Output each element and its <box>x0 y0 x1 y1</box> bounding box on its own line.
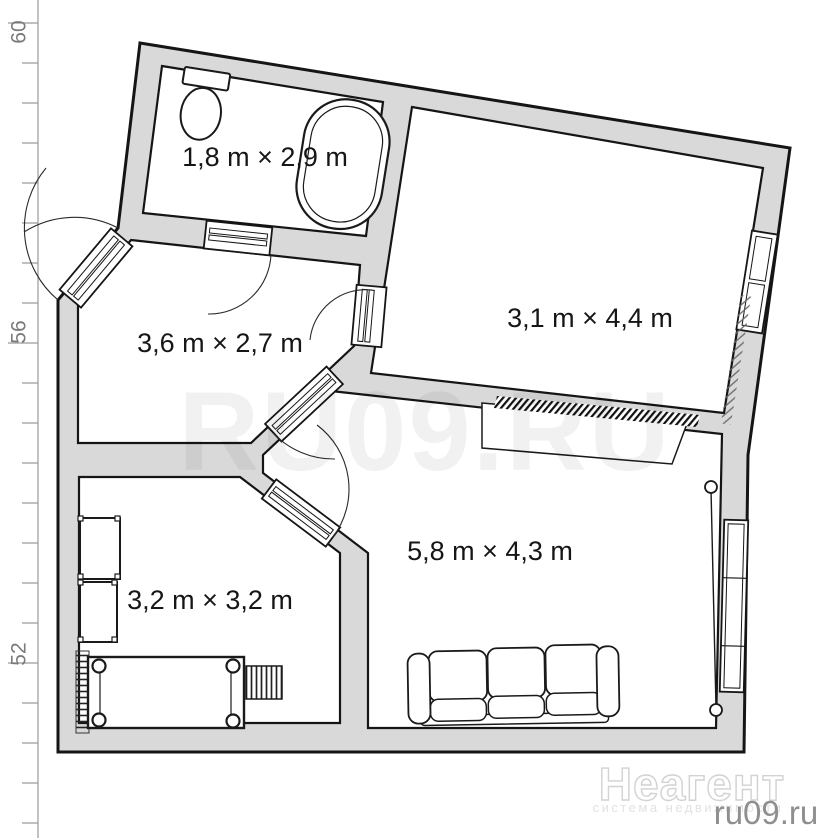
ruler <box>8 0 38 838</box>
ruler-label-52: 52 <box>8 642 31 665</box>
wardrobe-icon <box>78 516 120 579</box>
entry-door-arc <box>24 168 58 300</box>
ruler-label-60: 60 <box>8 20 31 43</box>
window-living-room <box>720 520 748 693</box>
sofa-icon <box>407 644 619 726</box>
label-room-top-right: 3,1 m × 4,4 m <box>507 303 673 333</box>
floor-plan-svg: 60 56 52 <box>0 0 828 838</box>
watermark-center: RU09.RU <box>178 369 671 494</box>
label-bedroom: 3,2 m × 3,2 m <box>127 585 293 615</box>
floor-plan-page: 60 56 52 <box>0 0 828 838</box>
watermark-site: ru09.ru <box>714 794 819 831</box>
ladder-icon <box>246 666 282 699</box>
ruler-label-56: 56 <box>8 320 31 343</box>
wardrobe-icon-2 <box>78 580 117 642</box>
label-hallway: 3,6 m × 2,7 m <box>137 328 303 358</box>
label-living-room: 5,8 m × 4,3 m <box>407 536 573 566</box>
label-bathroom: 1,8 m × 2,9 m <box>182 142 348 172</box>
ruler-minor-ticks <box>22 63 38 823</box>
